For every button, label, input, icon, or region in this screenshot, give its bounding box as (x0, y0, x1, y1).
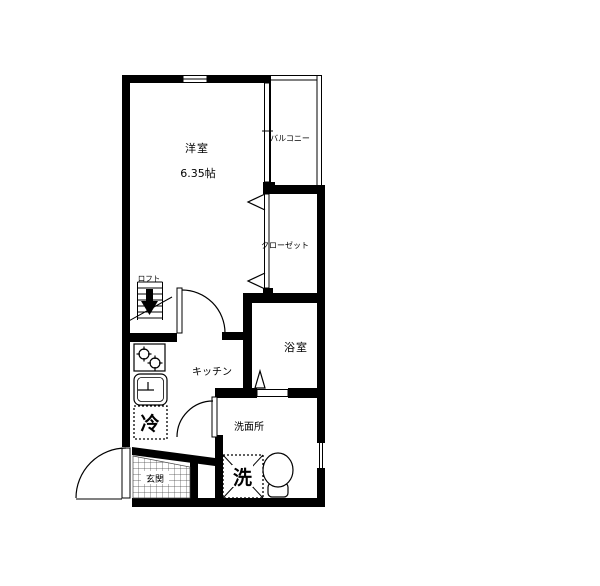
loft-label: ロフト (138, 274, 161, 283)
wall-right-upper (317, 303, 325, 443)
closet-label: クローゼット (261, 240, 309, 250)
toilet-icon (263, 453, 293, 497)
washroom-door (177, 397, 217, 437)
bathroom-folding-door-icon (255, 371, 265, 388)
bathroom-door-opening (257, 390, 288, 397)
kitchen-label: キッチン (192, 366, 232, 378)
wall-bathroom-top (243, 293, 325, 303)
wall-loft-bottom (122, 333, 177, 342)
stove-icon (134, 344, 165, 371)
wall-washroom-top-a (215, 388, 257, 398)
western-room-door (177, 288, 225, 333)
window-washroom (317, 443, 325, 468)
western-room-size-label: 6.35帖 (180, 167, 216, 180)
wall-bottom (132, 498, 325, 507)
entrance-label: 玄関 (146, 473, 164, 485)
wall-closet-top (263, 185, 325, 194)
wall-door-stop (222, 332, 243, 340)
closet-folding-door-bottom-icon (248, 273, 265, 289)
window-top (183, 76, 207, 83)
down-arrow-icon (141, 289, 158, 315)
balcony-label: バルコニー (270, 134, 310, 143)
floor-plan-page: 洋室 6.35帖 バルコニー クローゼット 浴室 キッチン 洗面所 玄関 ロフト… (0, 0, 600, 586)
balcony-outline (271, 76, 322, 186)
window-balcony-sliding-door (262, 83, 273, 182)
sink-icon (134, 374, 167, 405)
wall-top-left (122, 75, 183, 83)
western-room-label: 洋室 (185, 141, 209, 155)
closet-folding-door-top-icon (248, 194, 265, 210)
wall-left (122, 75, 130, 447)
wall-entrance-right (190, 461, 198, 498)
wall-washroom-left (215, 435, 223, 507)
entrance-door (76, 448, 130, 499)
washroom-label: 洗面所 (234, 421, 264, 433)
refrigerator-label: 冷 (140, 412, 159, 435)
wall-closet-right (317, 185, 325, 303)
wall-top-right (207, 75, 270, 83)
bathroom-door (255, 371, 288, 397)
wall-bathroom-left (243, 293, 252, 398)
floor-plan: 洋室 6.35帖 バルコニー クローゼット 浴室 キッチン 洗面所 玄関 ロフト… (0, 0, 600, 586)
loft-ladder (125, 282, 172, 323)
washing-machine-label: 洗 (233, 466, 252, 489)
bathroom-label: 浴室 (284, 340, 308, 354)
balcony (271, 76, 322, 186)
